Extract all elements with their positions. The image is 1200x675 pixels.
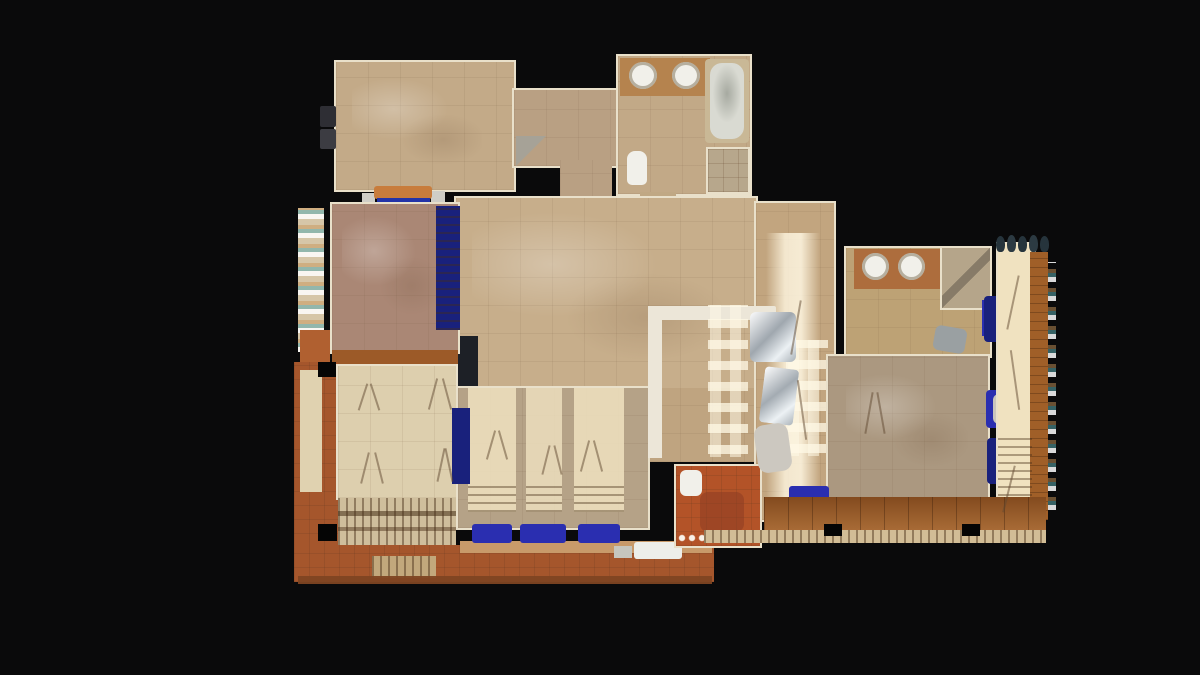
railing-plant-3: [1018, 236, 1027, 252]
kitchen-counter-side: [648, 306, 662, 458]
toilet1: [627, 151, 647, 185]
railing-plant-5: [1040, 236, 1049, 252]
railing-plant-1: [996, 236, 1005, 252]
steel-appliance-1: [750, 312, 796, 362]
terrace-object-gray: [614, 546, 632, 558]
patio-chair-gray: [753, 422, 793, 474]
corner-post-1: [318, 362, 336, 377]
hallway-connector: [560, 160, 612, 202]
master-bedroom-floor-sheen: [352, 78, 482, 166]
terrace-table-white: [634, 542, 682, 559]
corner-post-2: [318, 524, 337, 541]
bathroom2-stool: [932, 324, 968, 354]
balcony-railing-right: [1048, 262, 1056, 510]
window-lattice-light-1: [708, 305, 748, 457]
shower1-enclosure: [708, 149, 748, 192]
railing-plant-2: [1007, 235, 1016, 252]
railing-plant-4: [1029, 235, 1038, 252]
terrace-walkway-inner-cream: [300, 370, 322, 492]
shower2-enclosure: [942, 248, 990, 308]
terrace-edge: [298, 576, 712, 584]
deck-post-2: [962, 524, 980, 536]
balcony-wood-band: [1030, 252, 1048, 520]
shutter-shadow-1: [468, 486, 516, 512]
pink-bedroom-sheen: [342, 216, 442, 316]
sofa-lounger-3: [578, 524, 620, 543]
blue-daybed: [452, 408, 470, 484]
bathroom2-sink-right: [898, 253, 925, 280]
pergola-beam-1: [338, 511, 456, 516]
terrace-steps: [372, 556, 436, 578]
bathroom1-sink-right: [672, 62, 700, 89]
sofa-lounger-2: [520, 524, 566, 543]
living-room-floor-sheen: [472, 212, 722, 362]
patio-toilet: [680, 470, 702, 496]
pergola-beam-2: [338, 527, 456, 531]
wall-ac-unit-2: [320, 129, 336, 149]
wall-ac-unit-1: [320, 106, 336, 127]
rust-transition-band: [332, 350, 458, 364]
bathtub-basin: [710, 63, 744, 139]
deck-post-1: [824, 524, 842, 536]
viewer-canvas[interactable]: [0, 0, 1200, 675]
bathroom2-sink-left: [862, 253, 889, 280]
blue-drapery: [436, 206, 460, 330]
shutter-shadow-2: [526, 486, 562, 512]
bathroom1-sink-left: [629, 62, 657, 89]
shutter-shadow-3: [574, 486, 624, 512]
steel-appliance-2: [759, 366, 800, 426]
vestibule-door-swing: [516, 136, 546, 166]
bedroom2-sheen: [846, 374, 968, 468]
floorplan-view[interactable]: [0, 0, 1200, 675]
deck-pergola-slats: [704, 530, 1046, 543]
sofa-lounger-1: [472, 524, 512, 543]
patio-red-patch: [700, 492, 744, 532]
